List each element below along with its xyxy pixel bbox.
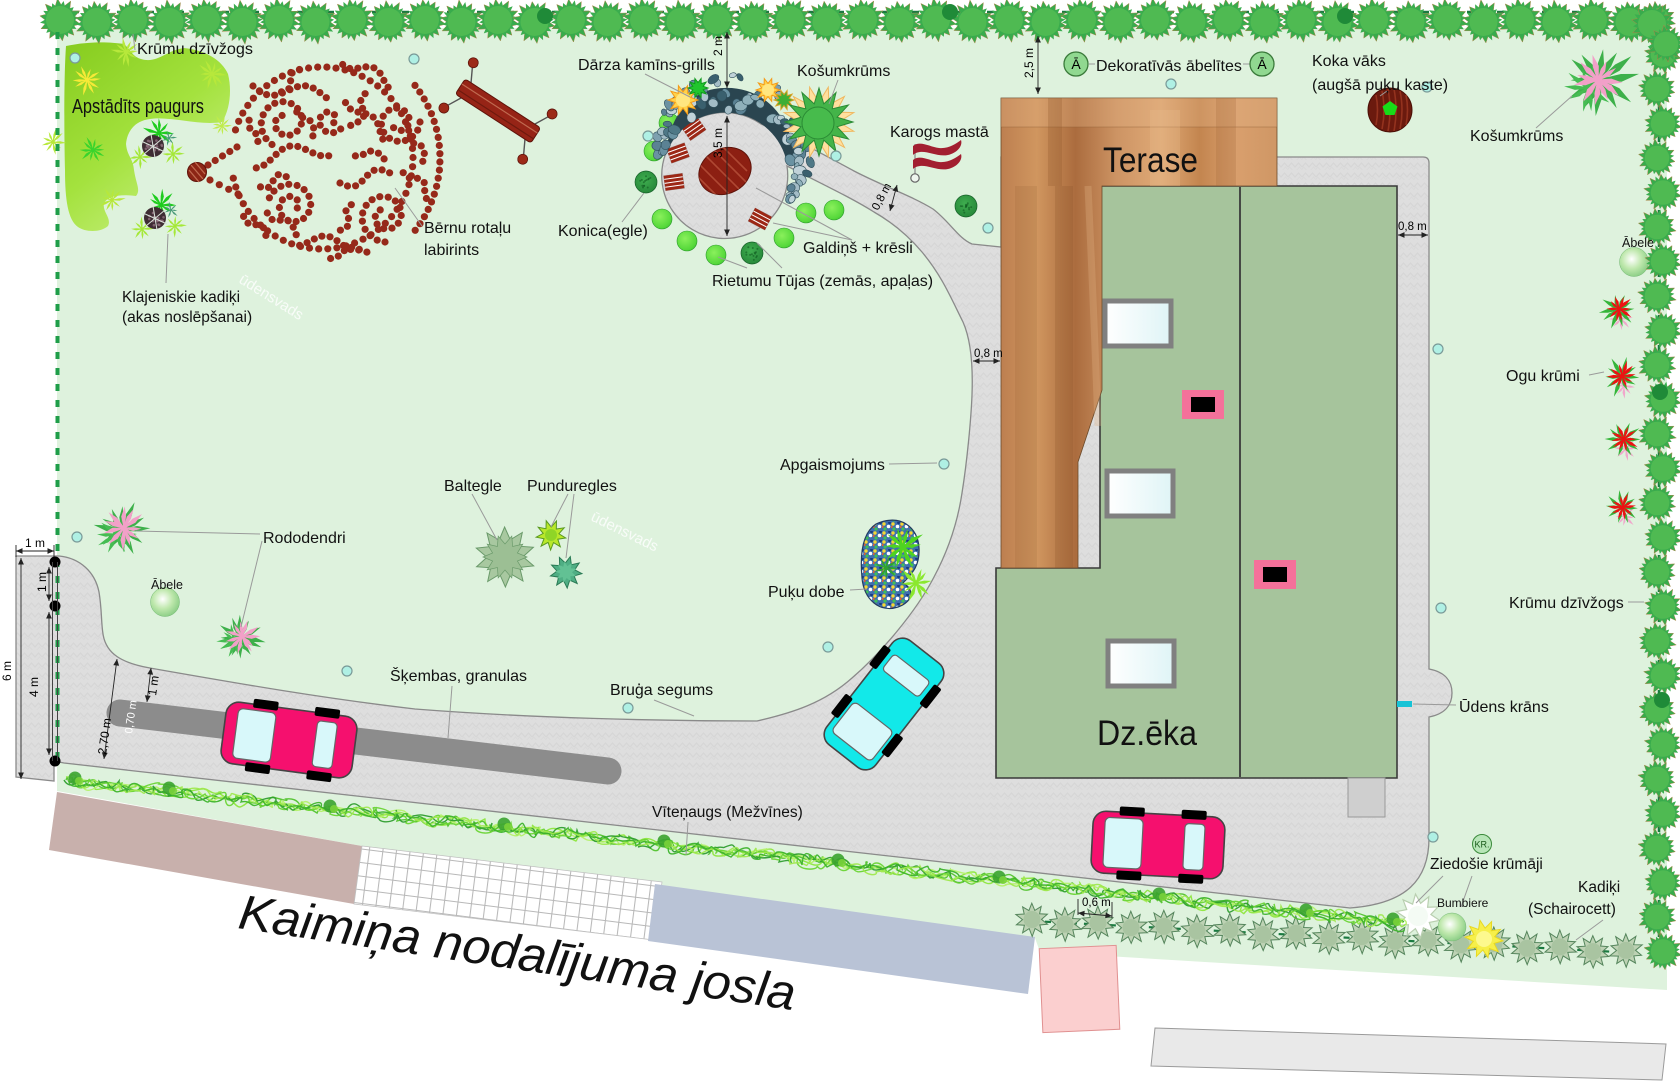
svg-text:Ābele: Ābele bbox=[151, 578, 183, 592]
svg-text:4 m: 4 m bbox=[27, 677, 41, 697]
svg-text:1 m: 1 m bbox=[145, 675, 162, 697]
svg-text:Krūmu dzīvžogs: Krūmu dzīvžogs bbox=[1509, 595, 1624, 612]
svg-text:Galdiņš + krēsli: Galdiņš + krēsli bbox=[803, 240, 913, 257]
svg-text:3,5 m: 3,5 m bbox=[711, 128, 725, 158]
svg-text:Punduregles: Punduregles bbox=[527, 478, 617, 495]
svg-text:1 m: 1 m bbox=[25, 536, 45, 550]
svg-text:Krūmu dzīvžogs: Krūmu dzīvžogs bbox=[137, 41, 253, 58]
svg-text:Dārza kamīns-grills: Dārza kamīns-grills bbox=[578, 57, 715, 74]
svg-text:Dz.ēka: Dz.ēka bbox=[1097, 714, 1197, 753]
svg-text:labirints: labirints bbox=[424, 242, 479, 259]
svg-text:6 m: 6 m bbox=[0, 661, 14, 681]
svg-text:Apstādīts paugurs: Apstādīts paugurs bbox=[72, 96, 204, 118]
svg-text:Rododendri: Rododendri bbox=[263, 530, 346, 547]
svg-text:Apgaismojums: Apgaismojums bbox=[780, 457, 885, 474]
svg-text:(Schairocett): (Schairocett) bbox=[1528, 901, 1616, 918]
svg-text:KR.: KR. bbox=[1474, 840, 1489, 850]
svg-text:1 m: 1 m bbox=[35, 572, 49, 592]
svg-text:Ā: Ā bbox=[1071, 56, 1081, 72]
svg-text:0,8 m: 0,8 m bbox=[1398, 221, 1427, 233]
svg-text:Ā: Ā bbox=[1257, 56, 1267, 72]
svg-text:Bērnu rotaļu: Bērnu rotaļu bbox=[424, 220, 511, 237]
svg-text:Rietumu Tūjas (zemās, apaļas): Rietumu Tūjas (zemās, apaļas) bbox=[712, 273, 933, 290]
svg-text:Kadiķi: Kadiķi bbox=[1578, 879, 1620, 896]
svg-text:Karogs mastā: Karogs mastā bbox=[890, 124, 989, 141]
svg-text:Ogu krūmi: Ogu krūmi bbox=[1506, 368, 1580, 385]
svg-text:Baltegle: Baltegle bbox=[444, 478, 502, 495]
svg-text:Bruģa segums: Bruģa segums bbox=[610, 681, 713, 699]
svg-text:Puķu dobe: Puķu dobe bbox=[768, 584, 845, 601]
svg-text:Klajeniskie kadiķi: Klajeniskie kadiķi bbox=[122, 289, 240, 306]
svg-text:Koka vāks: Koka vāks bbox=[1312, 53, 1386, 70]
svg-text:Dekoratīvās ābelītes: Dekoratīvās ābelītes bbox=[1096, 58, 1242, 75]
svg-text:Konica(egle): Konica(egle) bbox=[558, 223, 648, 240]
svg-text:(akas noslēpšanai): (akas noslēpšanai) bbox=[122, 309, 252, 326]
svg-text:Terase: Terase bbox=[1103, 141, 1198, 180]
svg-text:Vīteņaugs (Mežvīnes): Vīteņaugs (Mežvīnes) bbox=[652, 804, 803, 821]
svg-text:2,5 m: 2,5 m bbox=[1022, 48, 1036, 78]
svg-text:Ūdens krāns: Ūdens krāns bbox=[1459, 698, 1549, 716]
svg-text:Šķembas, granulas: Šķembas, granulas bbox=[390, 666, 527, 685]
svg-text:(augšā puķu kaste): (augšā puķu kaste) bbox=[1312, 77, 1448, 94]
svg-text:Ābele: Ābele bbox=[1622, 236, 1654, 250]
svg-text:Košumkrūms: Košumkrūms bbox=[797, 63, 890, 80]
svg-text:0,6 m: 0,6 m bbox=[1082, 897, 1111, 909]
svg-text:Ziedošie krūmāji: Ziedošie krūmāji bbox=[1430, 856, 1543, 873]
svg-text:Košumkrūms: Košumkrūms bbox=[1470, 128, 1563, 145]
svg-text:2 m: 2 m bbox=[711, 36, 725, 56]
svg-text:Bumbiere: Bumbiere bbox=[1437, 896, 1489, 910]
svg-text:0,8 m: 0,8 m bbox=[974, 348, 1003, 360]
